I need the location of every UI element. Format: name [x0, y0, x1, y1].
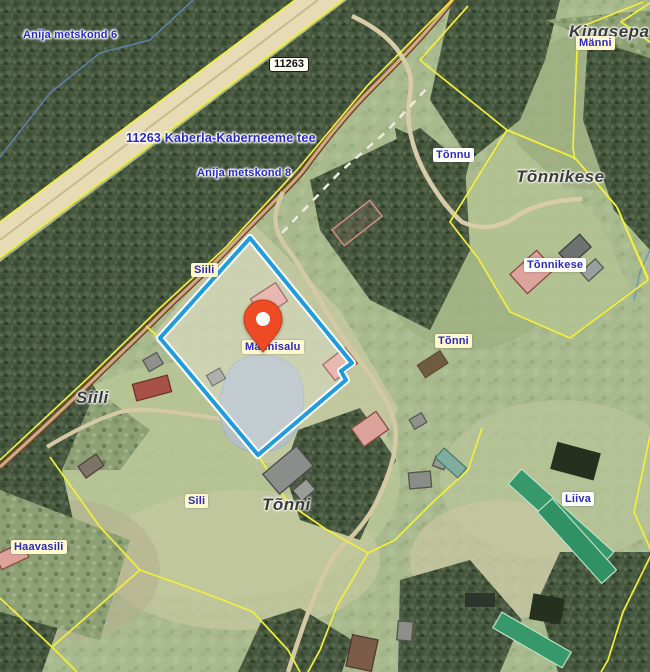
- map-tiles: [0, 0, 650, 672]
- location-marker-pin[interactable]: [241, 298, 285, 354]
- map-canvas[interactable]: Anija metskond 6 11263 Kaberla-Kaberneem…: [0, 0, 650, 672]
